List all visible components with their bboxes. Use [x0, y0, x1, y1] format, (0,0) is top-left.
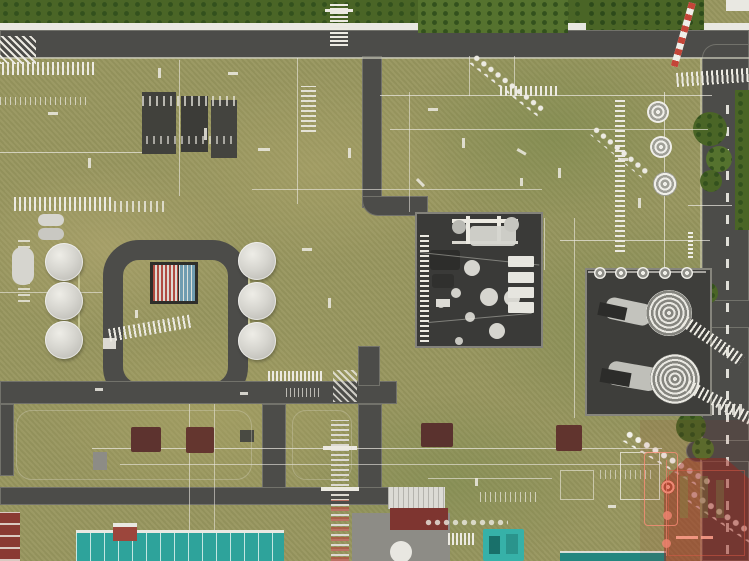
curb-top — [0, 57, 749, 59]
bushing-row-2 — [146, 136, 234, 144]
reactor-top-2 — [451, 288, 461, 298]
steel-structure — [520, 178, 523, 186]
pad-panel-2 — [508, 272, 534, 283]
reactor-top-3 — [480, 288, 498, 306]
vertical-tank — [12, 247, 34, 285]
small-tank-pair-b — [38, 228, 64, 240]
steel-structure — [428, 108, 438, 111]
conductor — [0, 152, 142, 153]
steel-structure — [158, 68, 161, 78]
steel-structure — [302, 248, 312, 251]
teal-equipment-detail-2 — [506, 534, 518, 554]
transformer-bank-3 — [211, 100, 237, 158]
oil-tank-3 — [45, 321, 83, 359]
bushing-top-5 — [681, 267, 693, 279]
steel-structure — [348, 148, 351, 158]
insulator-chain — [468, 52, 545, 116]
insulator-stack-2 — [650, 136, 672, 158]
cable-tray-vertical — [615, 100, 625, 252]
gantry-drum-2 — [504, 217, 519, 232]
building-white-roof-ribs — [388, 487, 445, 509]
island-curb-2 — [292, 410, 352, 480]
steel-structure — [328, 298, 331, 308]
steel-structure — [558, 168, 561, 178]
steel-structure — [618, 158, 628, 161]
tree-roadside-2 — [706, 146, 732, 172]
white-tank-bottom — [390, 541, 412, 561]
tower-crossarm — [325, 9, 353, 12]
steel-structure — [258, 148, 270, 151]
reactor-top-1 — [464, 260, 480, 276]
teal-roof-eave — [76, 530, 284, 533]
conductor — [544, 218, 545, 270]
road-center-upper — [362, 56, 382, 208]
steel-structure — [240, 392, 248, 395]
post-insulator-row — [424, 518, 508, 526]
steel-structure — [608, 505, 616, 508]
tree-strip-right-edge — [735, 90, 749, 230]
steel-structure — [462, 138, 465, 148]
red-roof-left-stripes — [0, 512, 20, 561]
boom-base-plate — [103, 338, 116, 349]
oil-tank-2 — [45, 282, 83, 320]
road-far-left-low — [0, 404, 14, 476]
busbar-row-g — [480, 492, 540, 502]
oil-tank-1 — [45, 243, 83, 281]
building-corner-top-right — [726, 0, 749, 11]
road-center-lower — [358, 404, 382, 500]
conductor — [574, 218, 575, 418]
red-shed-roof-edge — [113, 523, 137, 527]
steel-structure — [135, 310, 138, 318]
disconnect-row-b — [0, 97, 88, 105]
bushing-top-3 — [637, 267, 649, 279]
red-shed — [113, 526, 137, 541]
conductor — [297, 58, 298, 204]
small-tank-pair-a — [38, 214, 64, 226]
steel-structure — [638, 198, 641, 208]
equipment-footprint-2 — [560, 470, 594, 500]
conductor — [252, 189, 542, 190]
busbar-row-f — [286, 388, 322, 397]
conductor — [688, 205, 732, 206]
busbar-row-center — [268, 371, 322, 381]
steel-structure — [88, 158, 91, 168]
lattice-tower-top-left — [0, 36, 36, 64]
gantry-drum-1 — [452, 220, 466, 234]
disconnect-row-d — [114, 201, 168, 212]
steel-structure — [204, 128, 207, 140]
island-structure-red-fins — [153, 265, 178, 301]
road-left-lower — [262, 404, 286, 500]
red-transformer-3 — [421, 423, 453, 447]
watermark-inner-frame — [668, 470, 745, 556]
insulator-stack-3 — [653, 172, 677, 196]
steel-structure — [475, 478, 478, 486]
oil-tank-4 — [238, 242, 276, 280]
red-transformer-4 — [556, 425, 582, 451]
screenshot-stage — [0, 0, 749, 561]
tower-crossarm-2 — [321, 487, 359, 491]
tree-roadside-3 — [700, 170, 722, 192]
teal-roof-ridges — [76, 532, 284, 561]
substation-aerial-photo — [0, 0, 749, 561]
steel-structure — [416, 178, 425, 187]
pad-panel-4 — [508, 302, 534, 313]
conductor — [428, 478, 552, 479]
bushing-top-2 — [615, 267, 627, 279]
road-stub-pad-south — [358, 346, 380, 386]
watermark-text-illegible-2 — [701, 536, 713, 539]
bushing-top-1 — [594, 267, 606, 279]
island-structure-blue-fins — [179, 265, 195, 301]
watermark-text-illegible-1 — [676, 536, 698, 539]
teal-equipment-detail-1 — [489, 536, 500, 554]
conductor — [390, 129, 708, 130]
conductor — [179, 60, 180, 196]
steel-structure — [517, 148, 527, 156]
lattice-tower-mid — [301, 86, 316, 132]
reactor-top-6 — [489, 323, 505, 339]
road-top — [0, 30, 749, 58]
pad-panel-3 — [508, 287, 534, 298]
insulator-stack-1 — [647, 101, 669, 123]
reactor-top-8 — [455, 337, 463, 345]
pad-walkway-ladder — [420, 232, 429, 342]
conductor — [409, 92, 410, 212]
oil-tank-6 — [238, 322, 276, 360]
watermark-dot-1 — [663, 511, 672, 520]
watermark-chain-line — [666, 460, 667, 556]
ground-marking — [688, 231, 693, 258]
tower-red-paint — [331, 500, 349, 561]
junction-hatch — [333, 370, 357, 402]
steel-structure — [228, 72, 238, 75]
conductor — [560, 240, 710, 241]
steel-structure — [95, 388, 103, 391]
bushing-top-4 — [659, 267, 671, 279]
watermark-seal-circle — [661, 480, 675, 494]
busbar-row-bottom — [448, 533, 475, 545]
steel-structure — [48, 112, 58, 115]
disconnect-row-c — [14, 197, 112, 211]
oil-tank-5 — [238, 282, 276, 320]
island-curb-1 — [16, 410, 252, 480]
reactor-coil-2 — [650, 354, 700, 404]
pad-dark-unit-2 — [432, 274, 454, 288]
tree-cluster-top-center — [418, 0, 568, 33]
bushing-row-1 — [142, 96, 238, 106]
conductor — [380, 95, 712, 96]
pad-panel-small — [436, 299, 450, 307]
disconnect-row-a — [2, 62, 94, 75]
